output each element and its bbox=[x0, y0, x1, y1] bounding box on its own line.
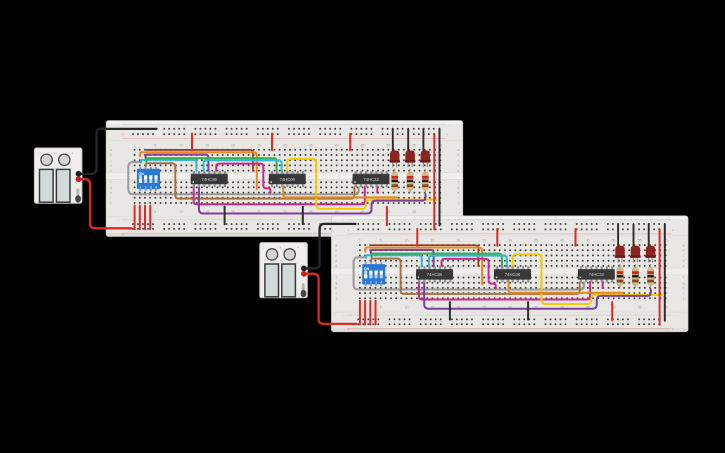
svg-text:5: 5 bbox=[154, 143, 156, 147]
svg-text:h: h bbox=[110, 191, 112, 195]
svg-text:e: e bbox=[335, 264, 337, 268]
svg-text:j: j bbox=[682, 297, 684, 301]
svg-text:3: 3 bbox=[375, 281, 377, 285]
svg-text:2: 2 bbox=[145, 185, 147, 189]
svg-text:a: a bbox=[335, 243, 337, 247]
svg-text:10: 10 bbox=[179, 143, 183, 147]
svg-text:d: d bbox=[457, 164, 459, 168]
svg-text:10: 10 bbox=[179, 210, 183, 214]
svg-text:j: j bbox=[457, 201, 459, 205]
svg-text:g: g bbox=[335, 281, 337, 285]
svg-text:50: 50 bbox=[387, 143, 391, 147]
svg-text:55: 55 bbox=[412, 143, 416, 147]
svg-text:f: f bbox=[110, 180, 111, 184]
svg-text:4: 4 bbox=[380, 281, 382, 285]
svg-text:35: 35 bbox=[534, 239, 538, 243]
svg-text:74HC08: 74HC08 bbox=[280, 177, 296, 182]
svg-text:45: 45 bbox=[586, 239, 590, 243]
svg-text:25: 25 bbox=[257, 143, 261, 147]
svg-text:e: e bbox=[457, 169, 459, 173]
svg-text:40: 40 bbox=[335, 143, 339, 147]
svg-text:-: - bbox=[263, 246, 264, 250]
svg-text:g: g bbox=[110, 186, 112, 190]
svg-text:b: b bbox=[335, 249, 337, 253]
svg-text:5: 5 bbox=[154, 210, 156, 214]
svg-text:30: 30 bbox=[508, 239, 512, 243]
svg-text:f: f bbox=[458, 180, 459, 184]
svg-text:45: 45 bbox=[361, 143, 365, 147]
svg-text:-: - bbox=[56, 151, 57, 155]
svg-text:3: 3 bbox=[150, 185, 152, 189]
svg-text:j: j bbox=[335, 297, 337, 301]
svg-text:a: a bbox=[457, 148, 459, 152]
svg-text:74HC86: 74HC86 bbox=[427, 272, 443, 277]
svg-text:1: 1 bbox=[139, 185, 141, 189]
svg-text:55: 55 bbox=[638, 239, 642, 243]
svg-text:f: f bbox=[336, 276, 337, 280]
svg-text:74HC32: 74HC32 bbox=[363, 177, 379, 182]
svg-text:b: b bbox=[457, 153, 459, 157]
svg-text:e: e bbox=[110, 169, 112, 173]
svg-text:d: d bbox=[683, 259, 685, 263]
svg-text:+: + bbox=[297, 246, 299, 250]
svg-text:1: 1 bbox=[134, 143, 136, 147]
svg-text:b: b bbox=[110, 153, 112, 157]
svg-text:50: 50 bbox=[612, 239, 616, 243]
svg-text:2: 2 bbox=[370, 281, 372, 285]
svg-text:10: 10 bbox=[405, 306, 409, 310]
svg-text:5: 5 bbox=[380, 239, 382, 243]
svg-text:4: 4 bbox=[155, 185, 157, 189]
svg-text:20: 20 bbox=[456, 239, 460, 243]
svg-text:20: 20 bbox=[231, 143, 235, 147]
svg-text:74HC32: 74HC32 bbox=[589, 272, 605, 277]
svg-text:d: d bbox=[335, 259, 337, 263]
svg-text:f: f bbox=[683, 276, 684, 280]
svg-text:1: 1 bbox=[365, 281, 367, 285]
svg-text:55: 55 bbox=[412, 210, 416, 214]
svg-text:5: 5 bbox=[380, 306, 382, 310]
svg-text:j: j bbox=[109, 201, 111, 205]
svg-text:15: 15 bbox=[431, 239, 435, 243]
svg-text:g: g bbox=[683, 281, 685, 285]
svg-text:h: h bbox=[335, 286, 337, 290]
svg-text:15: 15 bbox=[205, 143, 209, 147]
svg-text:a: a bbox=[110, 148, 112, 152]
svg-text:-: - bbox=[281, 246, 282, 250]
svg-text:30: 30 bbox=[283, 143, 287, 147]
svg-text:h: h bbox=[683, 286, 685, 290]
svg-text:e: e bbox=[683, 264, 685, 268]
svg-text:d: d bbox=[110, 164, 112, 168]
svg-text:74HC08: 74HC08 bbox=[505, 272, 521, 277]
svg-text:g: g bbox=[457, 186, 459, 190]
svg-text:1: 1 bbox=[359, 239, 361, 243]
svg-text:35: 35 bbox=[309, 143, 313, 147]
svg-text:55: 55 bbox=[638, 306, 642, 310]
svg-text:+: + bbox=[72, 151, 74, 155]
svg-text:a: a bbox=[683, 243, 685, 247]
svg-text:40: 40 bbox=[560, 239, 564, 243]
svg-text:25: 25 bbox=[482, 239, 486, 243]
svg-text:b: b bbox=[683, 249, 685, 253]
svg-text:74HC86: 74HC86 bbox=[202, 177, 218, 182]
svg-text:10: 10 bbox=[405, 239, 409, 243]
svg-text:-: - bbox=[38, 151, 39, 155]
svg-text:h: h bbox=[457, 191, 459, 195]
